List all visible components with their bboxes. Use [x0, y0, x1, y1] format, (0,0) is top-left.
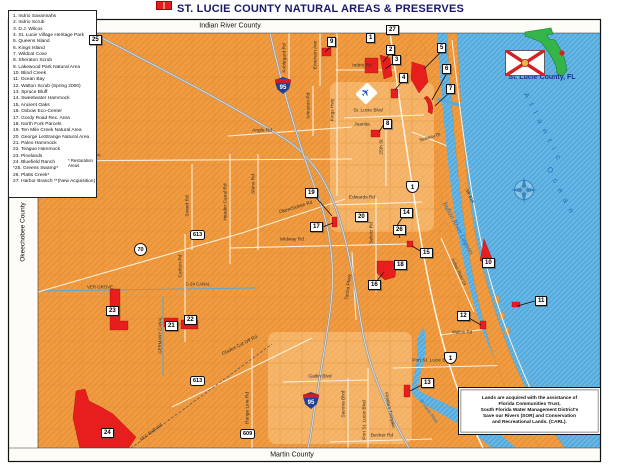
map-marker-19: 19	[305, 188, 318, 198]
road-label-header-canal: Header Canal Rd	[224, 183, 229, 220]
road-label-st-lucie-blvd: St. Lucie Blvd	[353, 109, 382, 114]
title-legend-chip-icon	[156, 1, 172, 10]
map-marker-15: 15	[420, 248, 433, 258]
map-marker-11: 11	[535, 296, 547, 306]
water-label-germany-canal: GERMANY CANAL	[158, 316, 163, 353]
county-label-north: Indian River County	[199, 23, 260, 30]
florida-flag-icon	[505, 50, 545, 76]
map-marker-6: 6	[442, 64, 451, 74]
road-label-shinn: Shinn Rd	[252, 174, 257, 194]
road-label-midway: Midway Rd	[280, 238, 304, 243]
road-label-angle: Angle Rd	[252, 129, 272, 134]
road-label-psl-blvd-v: Port St. Lucie Blvd	[363, 400, 368, 439]
road-label-indrio: Indrio Rd	[352, 64, 371, 69]
map-marker-22: 22	[184, 315, 197, 325]
road-label-gatlin: Gatlin Blvd	[308, 375, 331, 380]
map-marker-3: 3	[392, 55, 401, 65]
shield-sr613-south: 613	[190, 376, 205, 386]
map-page: ST. LUCIE COUNTY NATURAL AREAS & PRESERV…	[0, 0, 620, 475]
map-marker-4: 4	[399, 73, 408, 83]
shield-sr70: 70	[134, 243, 147, 256]
page-title: ST. LUCIE COUNTY NATURAL AREAS & PRESERV…	[177, 3, 464, 15]
map-marker-25: 25	[89, 35, 102, 45]
road-label-kings-hwy: Kings Hwy	[331, 99, 336, 122]
map-marker-16: 16	[368, 280, 381, 290]
map-marker-27: 27	[386, 25, 399, 35]
map-marker-7: 7	[446, 84, 455, 94]
preserve-area-9	[322, 48, 331, 56]
map-marker-1: 1	[366, 33, 375, 43]
map-marker-20: 20	[355, 212, 368, 222]
legend-item: 20. George LeStrange Natural Area	[13, 135, 94, 141]
road-label-edwards: Edwards Rd	[349, 196, 375, 201]
map-marker-10: 10	[482, 258, 495, 268]
map-marker-8: 8	[383, 119, 392, 129]
north-county-band	[9, 20, 601, 33]
map-marker-5: 5	[437, 43, 446, 53]
county-label-south: Martin County	[270, 452, 314, 459]
preserve-area-8	[371, 130, 380, 137]
road-label-savona: Savona Blvd	[342, 391, 347, 418]
preserve-area-11	[512, 302, 520, 307]
legend-panel: 1. Indrio Savannahs 2. Indrio Scrub 3. D…	[8, 10, 97, 198]
road-label-walton: Walton Rd	[452, 330, 472, 335]
map-marker-26: 26	[393, 225, 406, 235]
map-marker-13: 13	[421, 378, 434, 388]
county-location-dot	[559, 50, 564, 55]
credits-box: Lands are acquired with the assistance o…	[458, 387, 601, 435]
map-marker-24: 24	[101, 428, 114, 438]
road-label-selvitz: Selvitz Rd	[370, 222, 375, 244]
legend-note: * Restoration Areas	[68, 158, 95, 168]
map-marker-9: 9	[327, 37, 336, 47]
i95-red-band	[303, 394, 319, 398]
map-marker-18: 18	[394, 260, 407, 270]
shield-sr609: 609	[240, 429, 255, 439]
preserve-area-4	[391, 89, 398, 98]
road-label-sneed: Sneed Rd	[186, 195, 191, 216]
map-marker-12: 12	[457, 311, 470, 321]
map-marker-17: 17	[310, 222, 323, 232]
preserve-area-17	[332, 217, 337, 227]
preserve-area-13	[404, 385, 410, 397]
county-label-west: Okeechobee County	[20, 202, 27, 261]
road-label-range-line: Range Line Rd	[246, 392, 251, 424]
place-label-juanita: Juanita	[354, 123, 369, 128]
map-marker-23: 23	[106, 306, 119, 316]
road-label-becker: Becker Rd	[371, 434, 393, 439]
water-label-c24-canal: C-24 CANAL	[186, 282, 211, 287]
shield-sr613-north: 613	[190, 230, 205, 240]
road-label-25th-st: 25th St	[380, 139, 385, 154]
legend-item: 27. Harbor Branch **(New Acquisition)	[13, 179, 94, 185]
road-label-emerson: Emerson Ave	[314, 41, 319, 69]
map-marker-2: 2	[386, 45, 395, 55]
road-label-johnston: Johnston Rd	[307, 93, 312, 120]
map-marker-21: 21	[165, 321, 178, 331]
road-label-carlton: Carlton Rd	[179, 255, 184, 278]
map-marker-14: 14	[400, 208, 413, 218]
place-label-ver-grove: VER GROVE	[87, 285, 113, 290]
road-label-koblegard: Koblegard Rd	[283, 43, 288, 72]
i95-red-band	[275, 79, 291, 83]
credits-line: and Recreational Lands. (CARL).	[459, 420, 600, 426]
